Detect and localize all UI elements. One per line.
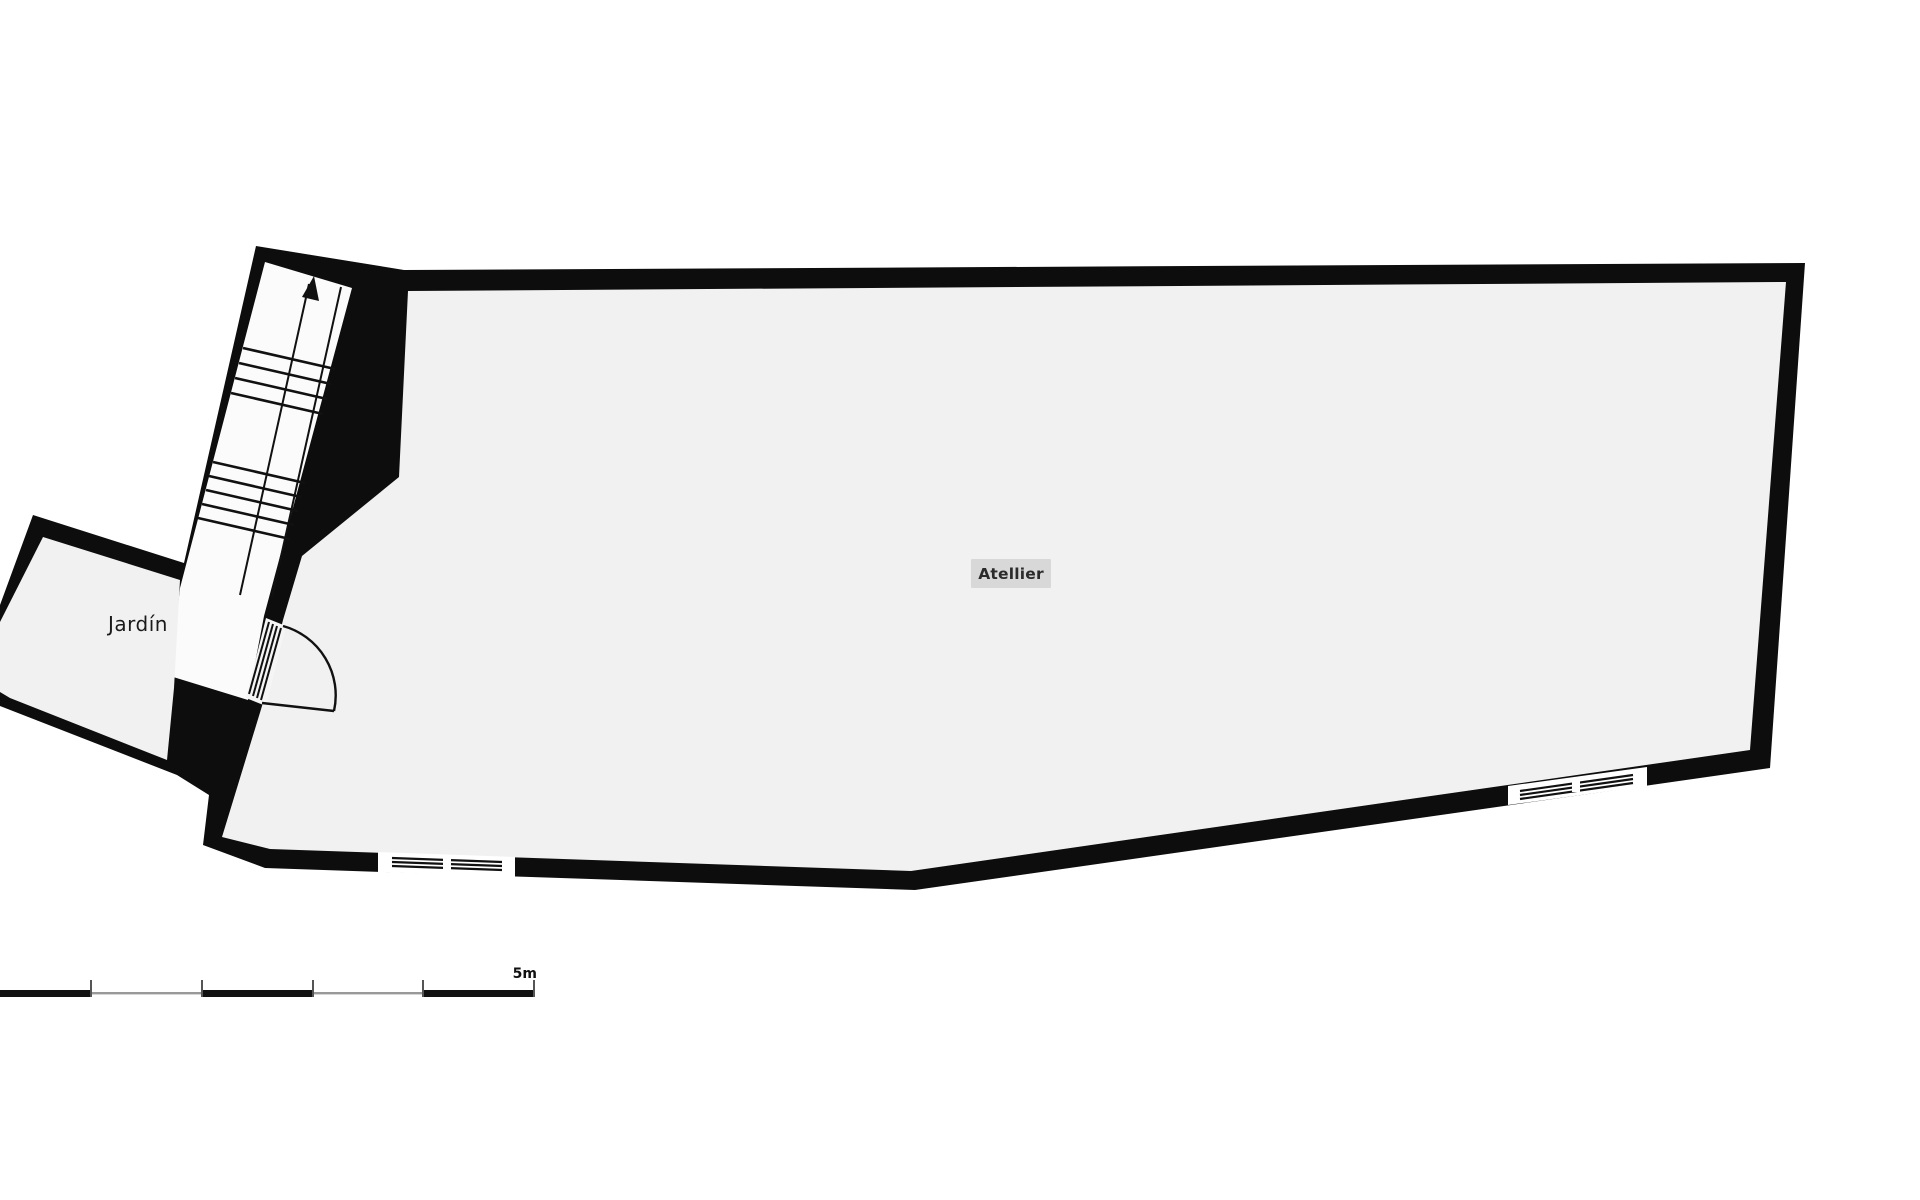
floor-plan-svg: 5m Atellier Jardín [0, 0, 1920, 1200]
floor-plan: 5m Atellier Jardín [0, 0, 1920, 1200]
window-right-mullion [1572, 778, 1580, 792]
scale-bar: 5m [0, 966, 537, 997]
scale-bar-label: 5m [513, 966, 537, 982]
atelier-label-text: Atellier [978, 565, 1044, 583]
atelier-label: Atellier [971, 559, 1051, 588]
jardin-label-text: Jardín [106, 612, 168, 636]
window-left-mullion [443, 856, 451, 870]
